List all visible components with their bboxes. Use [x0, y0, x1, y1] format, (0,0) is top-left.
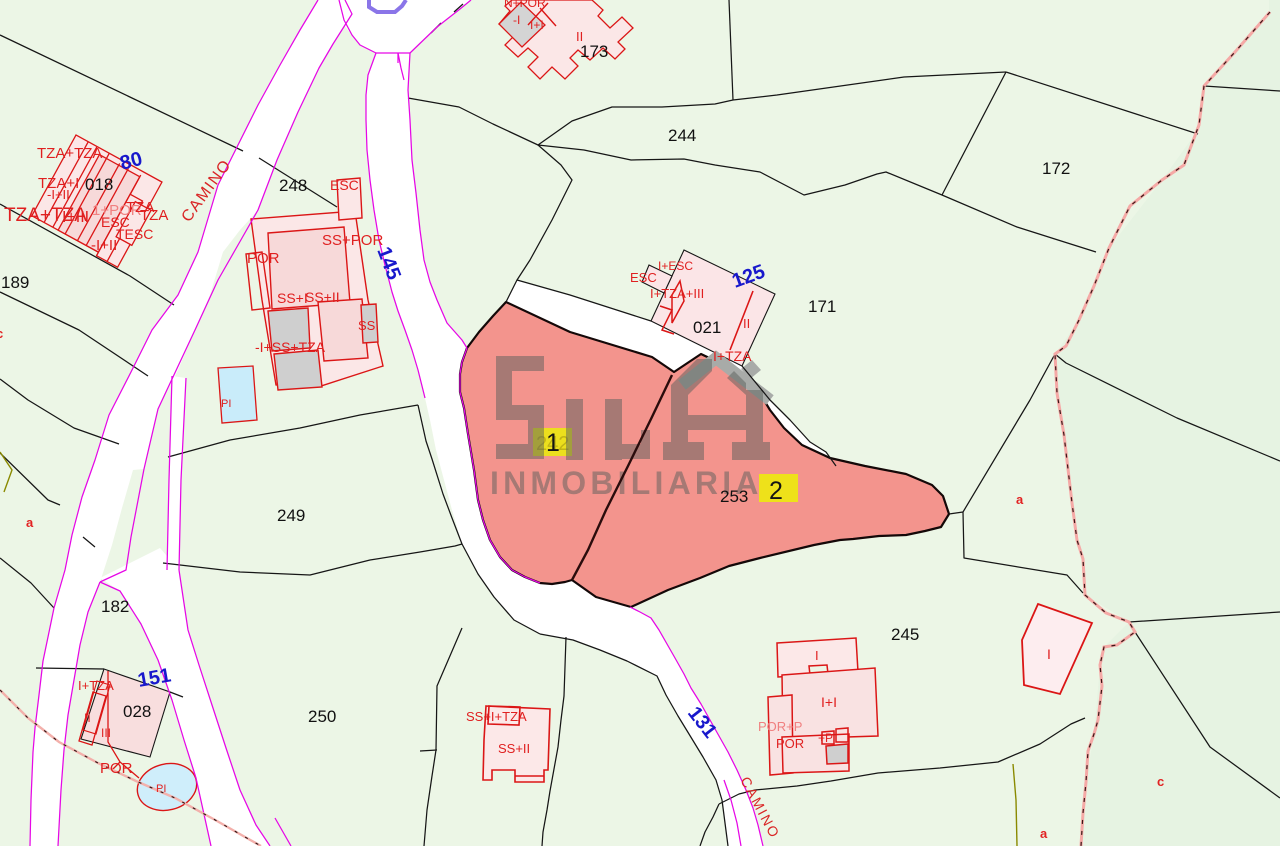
svg-text:-I+II: -I+II — [47, 187, 70, 202]
svg-text:III: III — [101, 726, 111, 740]
svg-text:I+TZA+III: I+TZA+III — [650, 286, 704, 301]
svg-text:244: 244 — [668, 126, 696, 145]
svg-text:173: 173 — [580, 42, 608, 61]
svg-text:1: 1 — [546, 429, 560, 457]
svg-text:021: 021 — [693, 318, 721, 337]
svg-text:TESC: TESC — [116, 226, 153, 242]
svg-text:c: c — [0, 326, 3, 341]
svg-text:189: 189 — [1, 273, 29, 292]
svg-text:SS+POR: SS+POR — [322, 232, 383, 249]
svg-text:II: II — [743, 316, 750, 331]
svg-text:SS+II: SS+II — [305, 289, 340, 305]
svg-text:2: 2 — [769, 477, 783, 505]
svg-text:250: 250 — [308, 707, 336, 726]
svg-text:018: 018 — [85, 175, 113, 194]
svg-text:a: a — [26, 515, 34, 530]
svg-text:I+TZA: I+TZA — [713, 348, 752, 364]
svg-text:TZA+TZA: TZA+TZA — [37, 145, 102, 162]
svg-text:-I+SS+TZA: -I+SS+TZA — [255, 339, 326, 355]
svg-text:II: II — [576, 29, 583, 44]
svg-text:POR: POR — [247, 250, 280, 267]
svg-text:ESC: ESC — [630, 270, 657, 285]
svg-text:a: a — [1016, 492, 1024, 507]
svg-text:POR+P: POR+P — [758, 719, 802, 734]
svg-text:172: 172 — [1042, 159, 1070, 178]
svg-text:I+I: I+I — [530, 18, 544, 32]
svg-text:171: 171 — [808, 297, 836, 316]
svg-text:I+III: I+III — [62, 209, 89, 226]
svg-text:N+POR: N+POR — [504, 0, 546, 10]
svg-text:I: I — [1047, 646, 1051, 662]
svg-text:SS+I: SS+I — [277, 290, 308, 306]
svg-text:+P: +P — [818, 731, 833, 745]
svg-text:II: II — [84, 711, 91, 725]
svg-text:POR: POR — [776, 736, 804, 751]
svg-text:c: c — [1157, 774, 1164, 789]
svg-text:PI: PI — [156, 783, 166, 795]
svg-text:253: 253 — [720, 487, 748, 506]
svg-text:SS+II: SS+II — [498, 741, 530, 756]
svg-text:SS: SS — [358, 318, 376, 333]
svg-text:a: a — [1040, 826, 1048, 841]
svg-text:I+I: I+I — [821, 694, 837, 710]
svg-text:028: 028 — [123, 702, 151, 721]
svg-text:249: 249 — [277, 506, 305, 525]
svg-text:248: 248 — [279, 176, 307, 195]
svg-text:245: 245 — [891, 625, 919, 644]
svg-text:POR: POR — [100, 760, 133, 777]
svg-text:I+TZA: I+TZA — [78, 678, 114, 693]
svg-text:I+ESC: I+ESC — [658, 259, 693, 273]
svg-text:-I+II: -I+II — [91, 237, 117, 254]
svg-text:182: 182 — [101, 597, 129, 616]
svg-text:PI: PI — [221, 398, 231, 410]
svg-text:SS+I+TZA: SS+I+TZA — [466, 709, 527, 724]
svg-text:-I: -I — [513, 13, 520, 27]
svg-text:ESC: ESC — [330, 177, 359, 193]
svg-text:I: I — [815, 648, 819, 663]
svg-text:TZA: TZA — [140, 207, 168, 224]
